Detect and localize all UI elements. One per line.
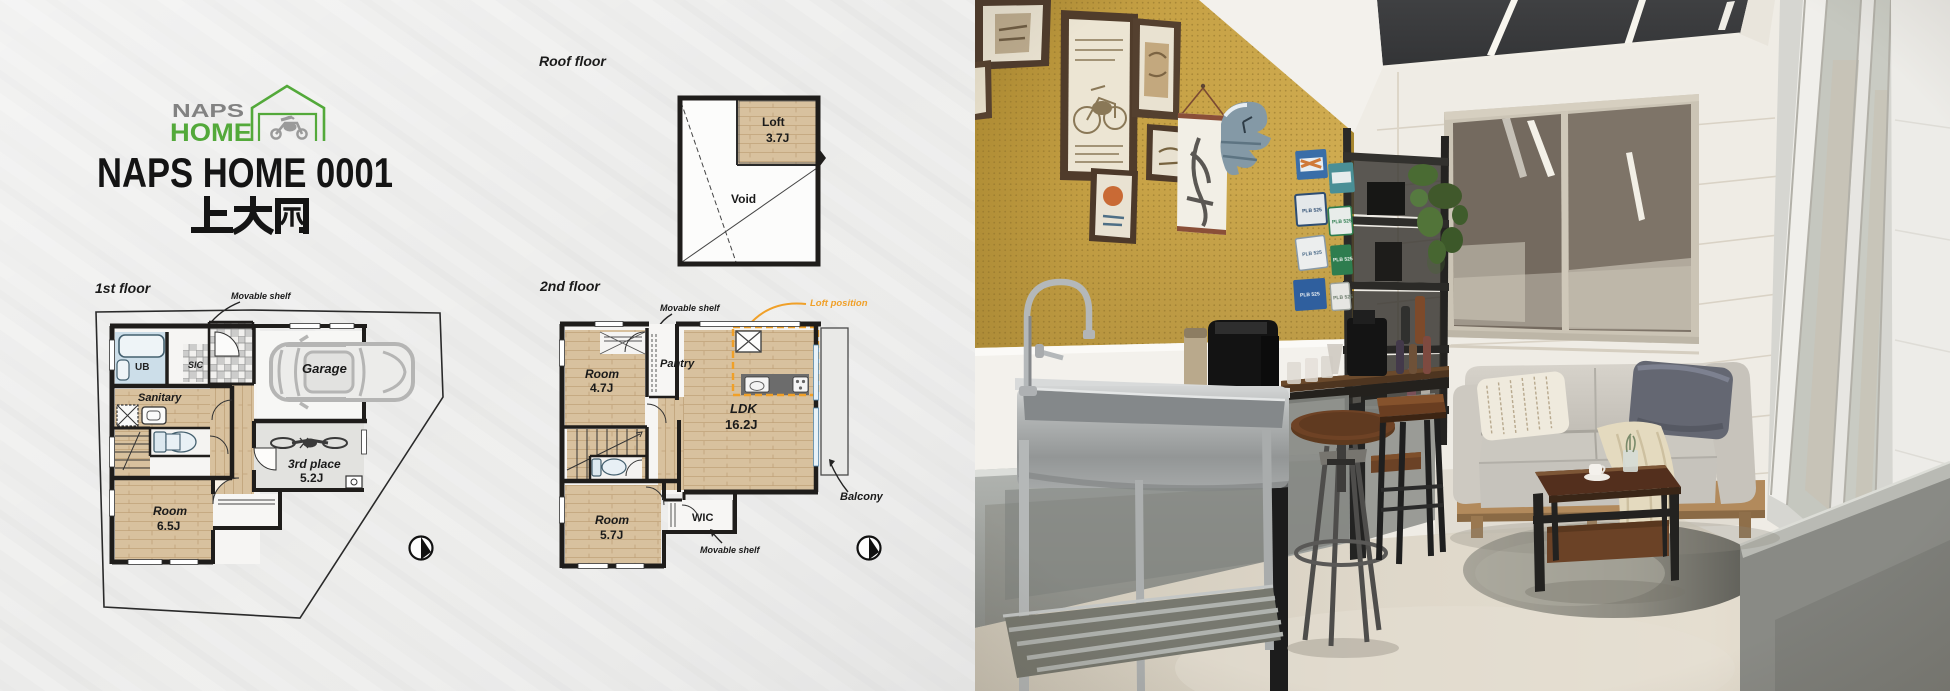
svg-text:NAPS HOME 0001: NAPS HOME 0001 (97, 149, 393, 196)
svg-text:HOME: HOME (170, 119, 252, 147)
svg-text:2nd floor: 2nd floor (539, 278, 601, 294)
svg-text:6.5J: 6.5J (157, 519, 180, 533)
svg-text:5.7J: 5.7J (600, 528, 623, 542)
svg-text:Loft: Loft (762, 115, 785, 129)
svg-text:Balcony: Balcony (840, 491, 884, 503)
svg-text:Roof floor: Roof floor (539, 53, 607, 69)
svg-text:16.2J: 16.2J (725, 417, 758, 432)
svg-text:Void: Void (731, 192, 756, 206)
svg-text:Room: Room (153, 504, 187, 518)
svg-text:UB: UB (135, 362, 149, 373)
svg-text:Movable shelf: Movable shelf (231, 291, 292, 301)
svg-text:4.7J: 4.7J (590, 381, 613, 395)
svg-text:WIC: WIC (692, 512, 713, 524)
svg-text:Garage: Garage (302, 361, 347, 376)
svg-text:Movable shelf: Movable shelf (700, 545, 761, 555)
svg-text:LDK: LDK (730, 401, 758, 416)
svg-text:Loft position: Loft position (810, 298, 868, 309)
svg-text:SIC: SIC (188, 360, 204, 370)
svg-text:3.7J: 3.7J (766, 131, 789, 145)
svg-text:Room: Room (585, 367, 619, 381)
svg-text:1st floor: 1st floor (95, 280, 152, 296)
svg-text:NAPS: NAPS (172, 101, 244, 121)
svg-text:3rd place: 3rd place (288, 457, 341, 471)
svg-text:Sanitary: Sanitary (138, 392, 182, 404)
svg-text:Movable shelf: Movable shelf (660, 303, 721, 313)
svg-text:Pantry: Pantry (660, 358, 695, 370)
svg-text:Room: Room (595, 513, 629, 527)
svg-text:5.2J: 5.2J (300, 471, 323, 485)
